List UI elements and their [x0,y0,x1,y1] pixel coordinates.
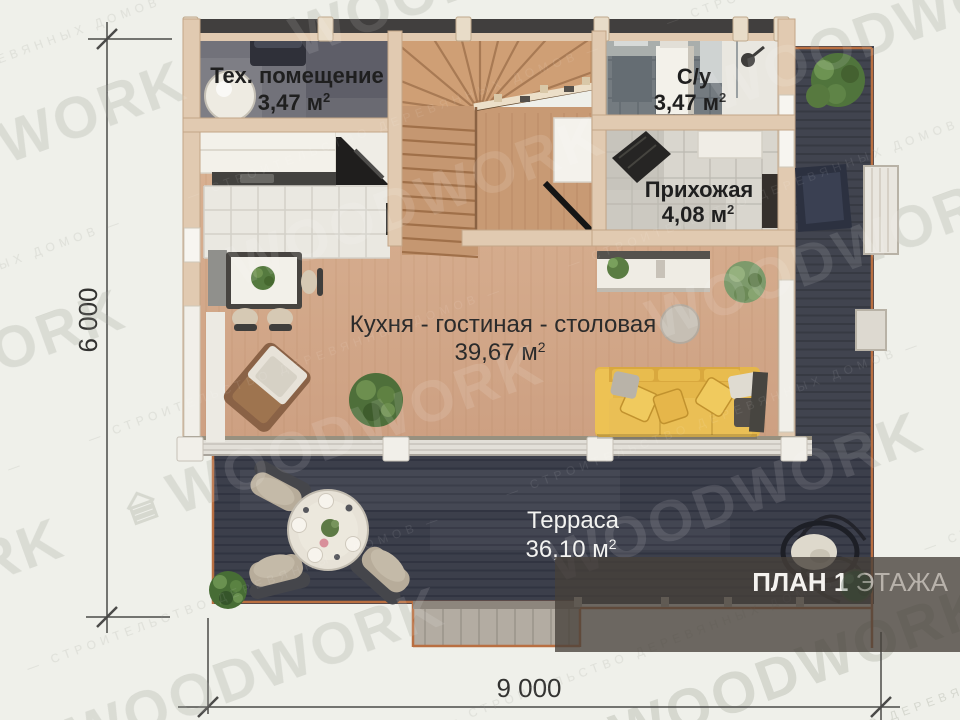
svg-text:Тех. помещение: Тех. помещение [210,63,384,88]
svg-text:3,47 м2: 3,47 м2 [258,90,330,115]
